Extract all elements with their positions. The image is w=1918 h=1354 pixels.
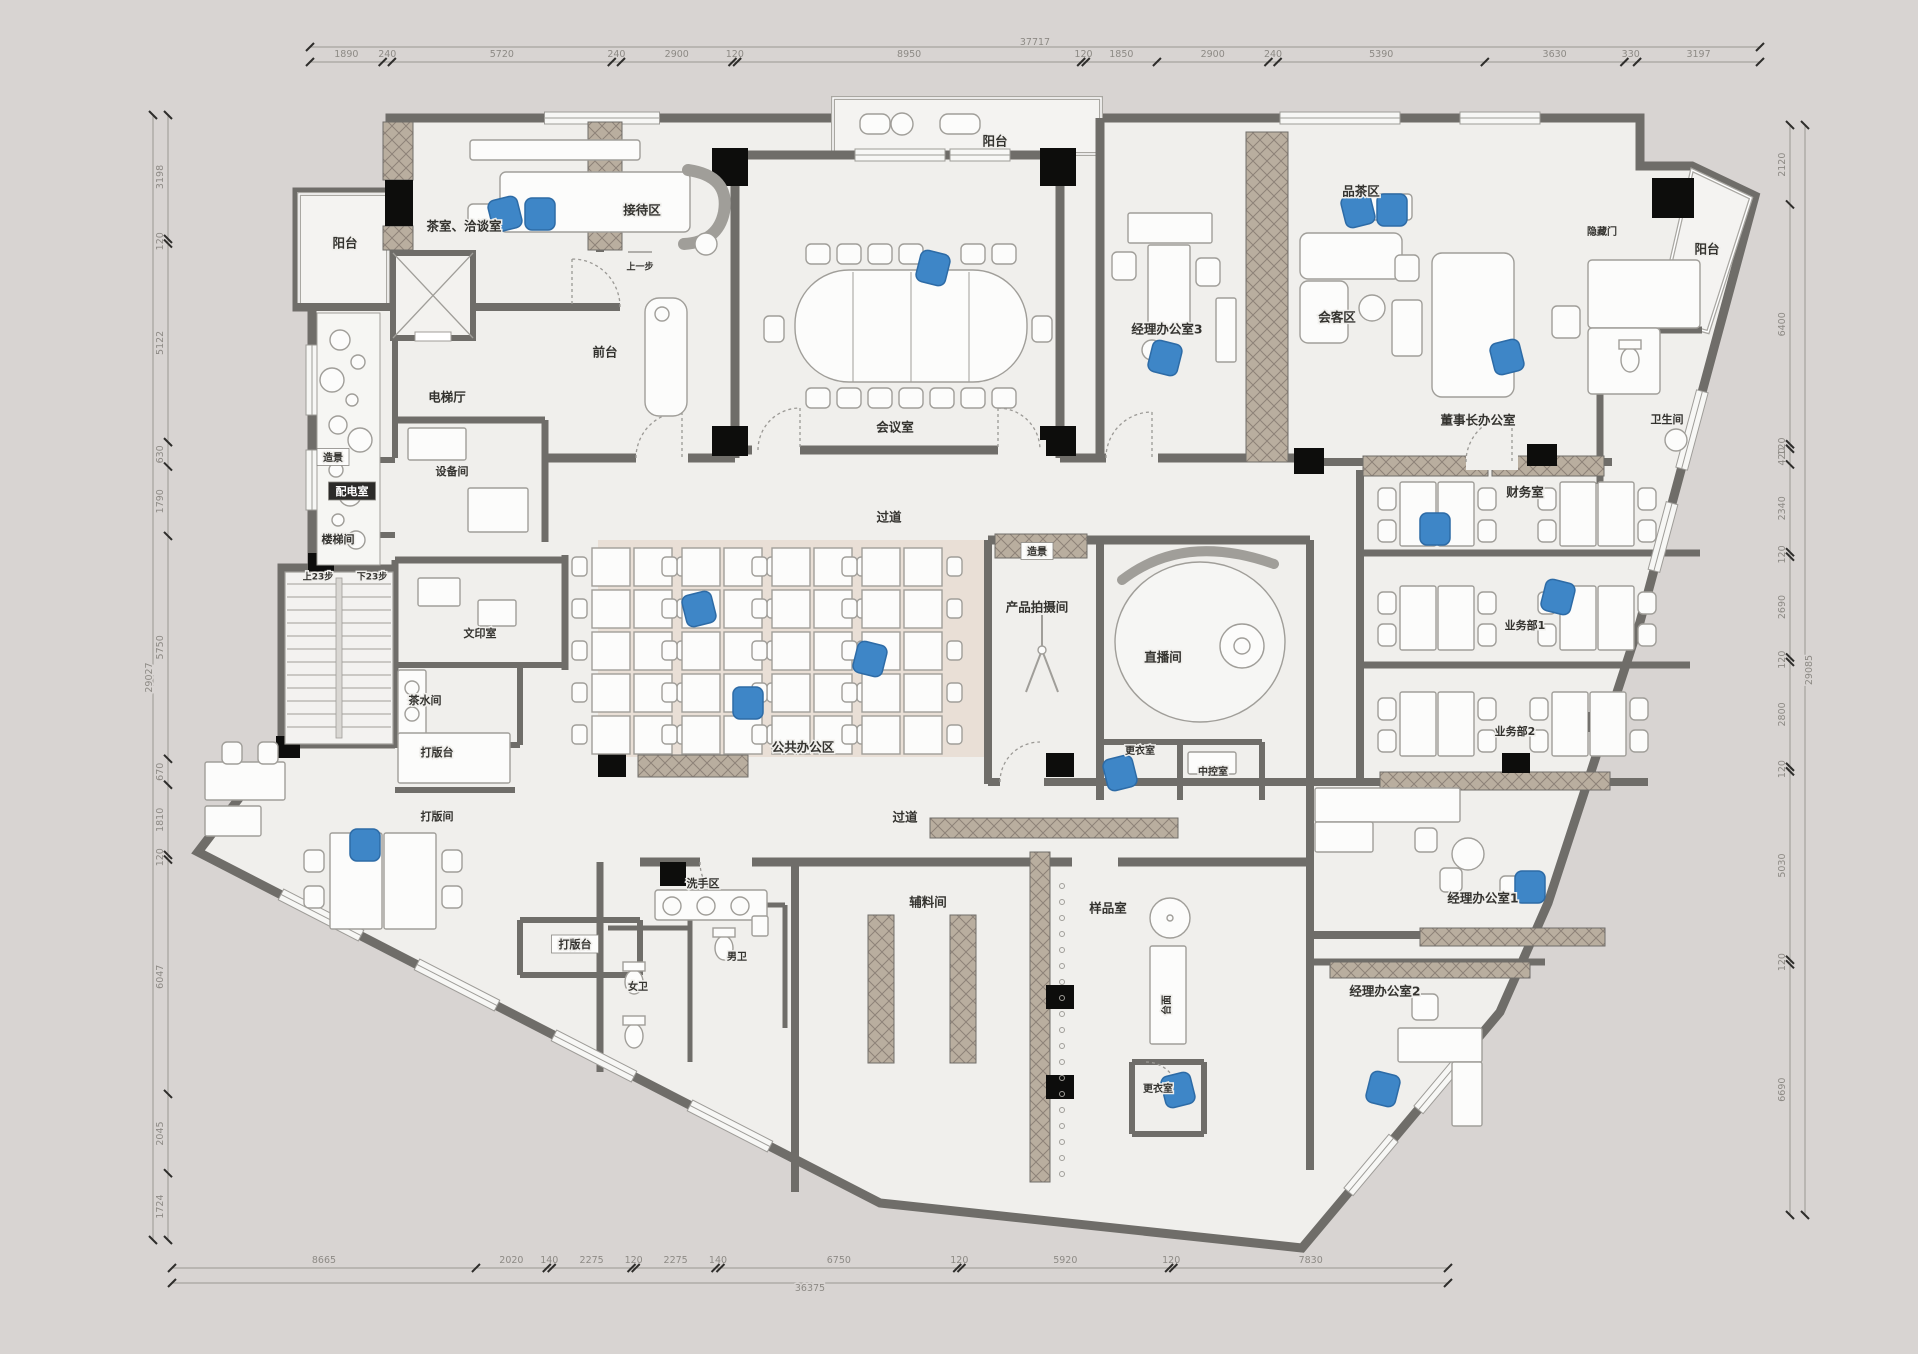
room-label-counter-top: 台面 bbox=[1160, 995, 1173, 1015]
dim-label: 3630 bbox=[1543, 49, 1567, 60]
room-label-meeting-room: 会议室 bbox=[876, 420, 914, 435]
room-label-pattern-room: 打版间 bbox=[421, 809, 454, 823]
room-label-tea-area: 品茶区 bbox=[1342, 184, 1380, 199]
dim-total-top: 37717 bbox=[1020, 37, 1050, 48]
dim-label: 2340 bbox=[1777, 496, 1788, 520]
room-label-manager-office-2: 经理办公室2 bbox=[1349, 984, 1420, 999]
room-label-manager-office-1: 经理办公室1 bbox=[1447, 891, 1518, 906]
dim-label: 5390 bbox=[1369, 49, 1393, 60]
blue-chair bbox=[733, 687, 763, 719]
dim-label: 6400 bbox=[1777, 312, 1788, 336]
dim-label: 1850 bbox=[1109, 49, 1133, 60]
dim-label: 2690 bbox=[1777, 595, 1788, 619]
room-label-business-dept-2: 业务部2 bbox=[1495, 724, 1536, 738]
room-label-pattern-table-lower: 打版台 bbox=[559, 937, 592, 951]
blue-chair bbox=[1515, 871, 1545, 903]
room-label-balcony-right: 阳台 bbox=[1694, 242, 1719, 257]
room-label-changing-room-mid: 更衣室 bbox=[1125, 744, 1155, 757]
room-label-stairs-up: 上23步 bbox=[303, 571, 334, 583]
dim-label: 120 bbox=[1777, 760, 1788, 778]
room-label-reception: 接待区 bbox=[623, 203, 661, 218]
room-label-corridor-upper: 过道 bbox=[876, 510, 902, 525]
dim-label: 2120 bbox=[1777, 153, 1788, 177]
room-label-stair-room: 楼梯间 bbox=[322, 532, 355, 546]
dim-label: 120 bbox=[625, 1255, 643, 1266]
room-label-public-office: 公共办公区 bbox=[772, 740, 835, 755]
dim-label: 420 bbox=[1777, 448, 1788, 466]
room-label-finance-room: 财务室 bbox=[1505, 485, 1544, 500]
blue-chair bbox=[350, 829, 380, 861]
dim-label: 240 bbox=[607, 49, 625, 60]
dim-label: 330 bbox=[1622, 49, 1640, 60]
room-label-control-room: 中控室 bbox=[1198, 765, 1228, 778]
dim-label: 5030 bbox=[1777, 853, 1788, 877]
dim-label: 6047 bbox=[155, 965, 166, 989]
room-label-landscape-left: 造景 bbox=[323, 451, 343, 464]
room-label-live-room: 直播间 bbox=[1144, 650, 1182, 665]
office-floor-plan: 阳台茶室、洽谈室接待区上一步前台电梯厅造景配电室楼梯间设备间上23步下23步会议… bbox=[0, 0, 1918, 1354]
room-label-balcony-left: 阳台 bbox=[332, 236, 357, 251]
room-label-chairman-office: 董事长办公室 bbox=[1440, 413, 1516, 428]
dim-label: 2800 bbox=[1777, 702, 1788, 726]
room-label-hidden-door: 隐藏门 bbox=[1587, 225, 1617, 238]
dim-label: 120 bbox=[1777, 545, 1788, 563]
room-label-elevator-hall: 电梯厅 bbox=[428, 390, 466, 405]
dim-label: 7830 bbox=[1299, 1255, 1323, 1266]
blue-chair bbox=[525, 198, 555, 230]
room-label-stairs-down: 下23步 bbox=[357, 571, 388, 583]
dim-label: 2020 bbox=[499, 1255, 523, 1266]
dim-total-right: 29085 bbox=[1804, 655, 1815, 685]
dim-label: 630 bbox=[155, 445, 166, 463]
dim-label: 3198 bbox=[155, 165, 166, 189]
dim-label: 120 bbox=[155, 848, 166, 866]
blue-chair bbox=[1377, 194, 1407, 226]
room-label-pantry: 茶水间 bbox=[408, 693, 442, 707]
room-label-corridor-lower: 过道 bbox=[892, 810, 918, 825]
dim-label: 120 bbox=[950, 1255, 968, 1266]
dim-label: 1810 bbox=[155, 808, 166, 832]
room-label-equipment-room: 设备间 bbox=[436, 464, 469, 478]
room-label-tea-room: 茶室、洽谈室 bbox=[425, 219, 502, 234]
room-label-restroom-right: 卫生间 bbox=[1651, 412, 1684, 426]
dim-label: 8950 bbox=[897, 49, 921, 60]
dim-label: 140 bbox=[709, 1255, 727, 1266]
room-label-guest-area: 会客区 bbox=[1318, 310, 1356, 325]
dim-label: 6750 bbox=[827, 1255, 851, 1266]
dim-label: 2045 bbox=[155, 1121, 166, 1145]
blue-chair bbox=[1420, 513, 1450, 545]
dim-label: 1890 bbox=[334, 49, 358, 60]
dim-label: 2900 bbox=[1201, 49, 1225, 60]
room-label-manager-office-3: 经理办公室3 bbox=[1131, 322, 1202, 337]
dim-label: 1724 bbox=[155, 1194, 166, 1218]
dim-label: 120 bbox=[1777, 651, 1788, 669]
dim-label: 5920 bbox=[1053, 1255, 1077, 1266]
dim-label: 1790 bbox=[155, 489, 166, 513]
room-label-materials-room: 辅料间 bbox=[909, 895, 947, 910]
room-label-product-photo-room: 产品拍摄间 bbox=[1006, 600, 1069, 615]
dim-label: 8665 bbox=[312, 1255, 336, 1266]
room-label-balcony-top: 阳台 bbox=[982, 134, 1007, 149]
room-label-pattern-table-upper: 打版台 bbox=[421, 745, 454, 759]
dim-label: 670 bbox=[155, 763, 166, 781]
dim-label: 120 bbox=[726, 49, 744, 60]
room-label-business-dept-1: 业务部1 bbox=[1505, 618, 1546, 632]
floor-plan-canvas: 阳台茶室、洽谈室接待区上一步前台电梯厅造景配电室楼梯间设备间上23步下23步会议… bbox=[0, 0, 1918, 1354]
room-label-power-room: 配电室 bbox=[336, 484, 369, 498]
dim-label: 120 bbox=[1074, 49, 1092, 60]
room-label-sample-room: 样品室 bbox=[1089, 901, 1127, 916]
room-label-landscape-mid: 造景 bbox=[1027, 545, 1047, 558]
dim-label: 2275 bbox=[580, 1255, 604, 1266]
dim-label: 120 bbox=[155, 232, 166, 250]
room-label-changing-room-bottom: 更衣室 bbox=[1143, 1082, 1173, 1095]
dim-total-bottom: 36375 bbox=[795, 1283, 825, 1294]
dim-label: 3197 bbox=[1686, 49, 1710, 60]
room-label-print-room: 文印室 bbox=[464, 626, 497, 640]
dim-label: 5122 bbox=[155, 331, 166, 355]
dim-label: 120 bbox=[1162, 1255, 1180, 1266]
room-label-womens-toilet: 女卫 bbox=[628, 980, 648, 993]
dim-label: 5750 bbox=[155, 635, 166, 659]
dim-total-left: 29027 bbox=[144, 662, 155, 692]
dim-label: 240 bbox=[378, 49, 396, 60]
room-label-wash-area: 洗手区 bbox=[687, 876, 720, 890]
dim-label: 2900 bbox=[665, 49, 689, 60]
dim-label: 240 bbox=[1264, 49, 1282, 60]
dim-label: 6690 bbox=[1777, 1078, 1788, 1102]
dim-label: 5720 bbox=[490, 49, 514, 60]
dim-label: 140 bbox=[540, 1255, 558, 1266]
room-label-mens-toilet: 男卫 bbox=[727, 951, 747, 963]
dim-label: 2275 bbox=[664, 1255, 688, 1266]
room-label-step-note: 上一步 bbox=[626, 261, 653, 273]
dim-label: 120 bbox=[1777, 953, 1788, 971]
room-label-front-desk: 前台 bbox=[592, 345, 617, 360]
